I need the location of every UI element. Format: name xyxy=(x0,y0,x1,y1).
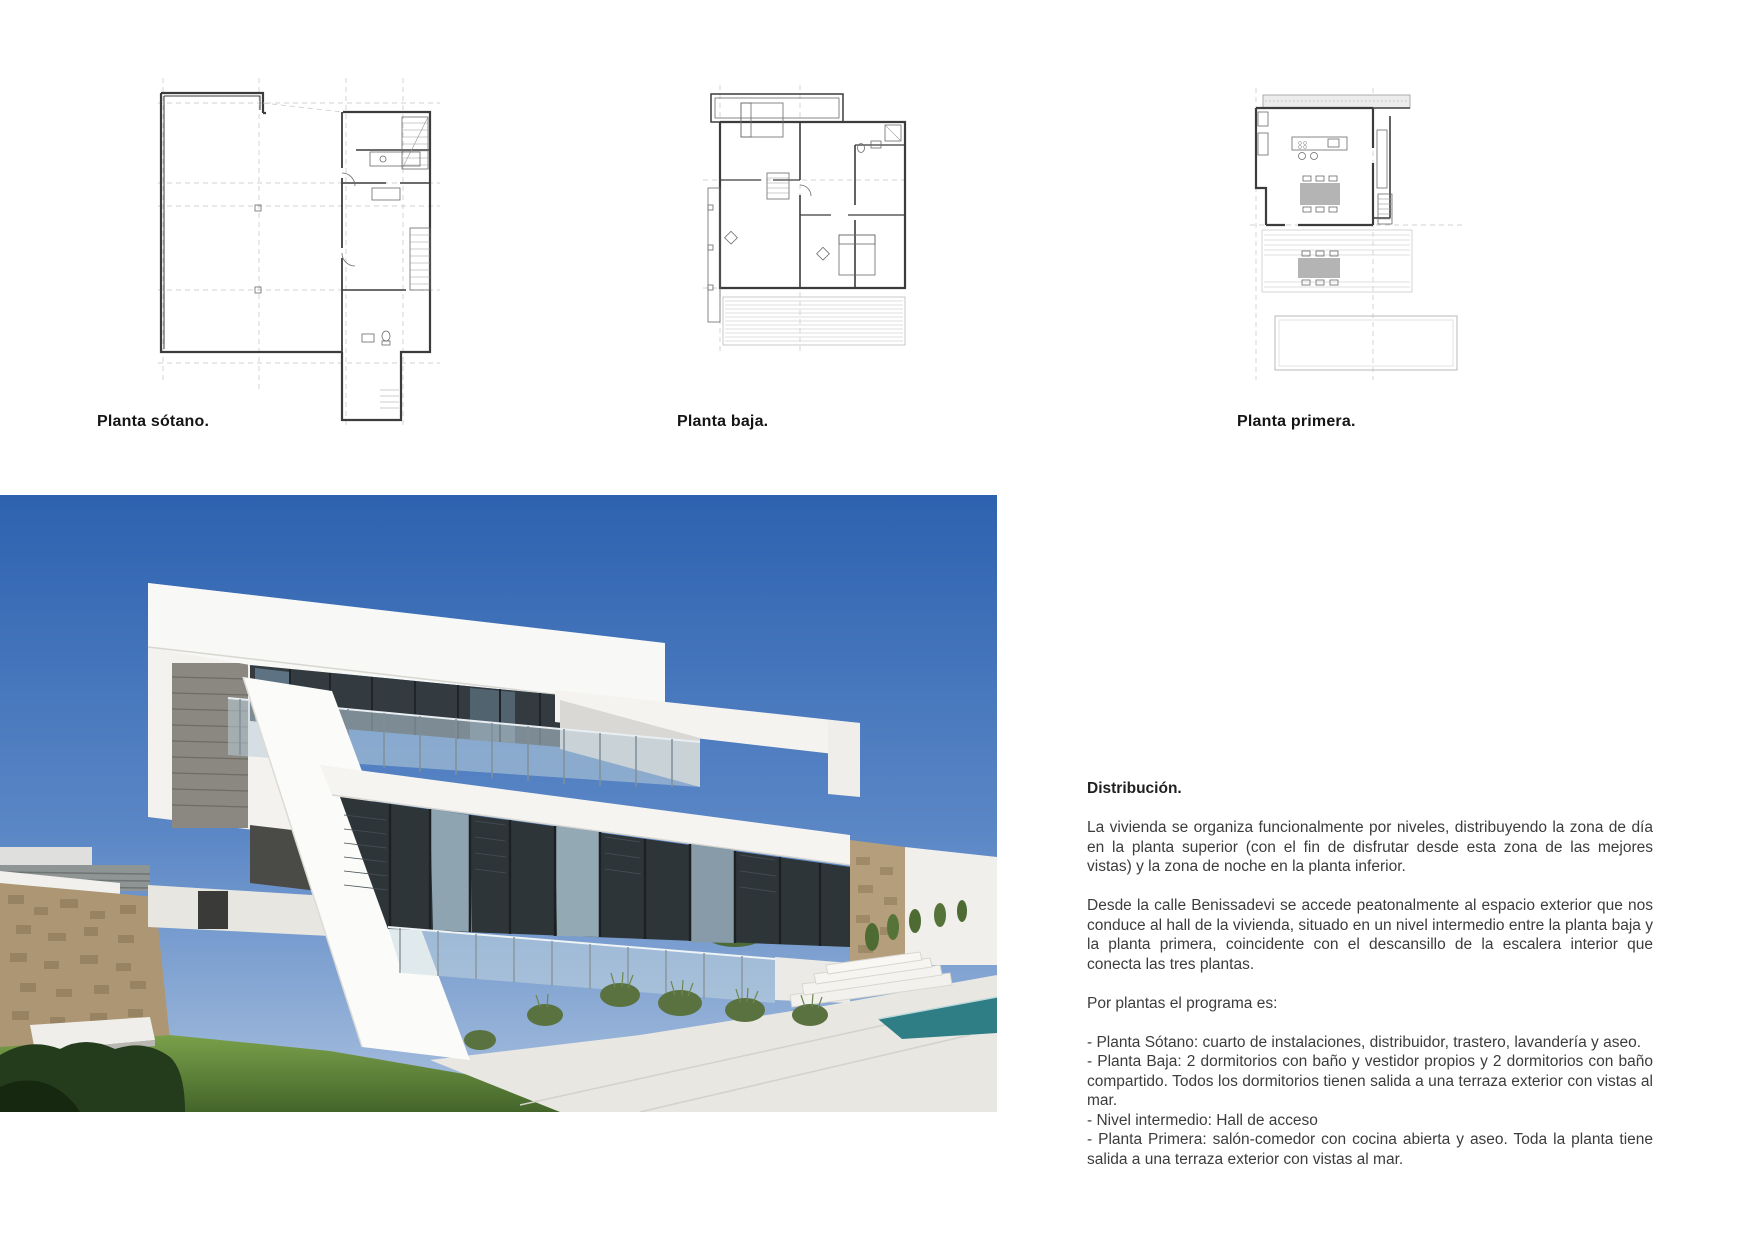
plan-grid xyxy=(158,78,440,426)
plan-dining-table xyxy=(1300,176,1340,212)
plan-side-terrace xyxy=(708,188,720,322)
program-item-intermedio: - Nivel intermedio: Hall de acceso xyxy=(1087,1111,1653,1131)
plan-outer-walls xyxy=(720,122,905,288)
plan-roof-slab xyxy=(711,94,843,122)
plan-kitchen xyxy=(1292,137,1347,160)
plan-grid xyxy=(1250,88,1465,380)
floorplan-sotano-drawing xyxy=(158,78,440,426)
program-item-primera: - Planta Primera: salón-comedor con coci… xyxy=(1087,1130,1653,1169)
plan-outer-walls xyxy=(161,93,430,420)
villa-photo xyxy=(0,495,997,1112)
plan-grid xyxy=(703,85,908,355)
program-item-sotano: - Planta Sótano: cuarto de instalaciones… xyxy=(1087,1033,1653,1053)
plan-stair-upper xyxy=(402,117,428,169)
villa-photo-drawing xyxy=(0,495,997,1112)
document-page: Planta sótano. xyxy=(0,0,1755,1241)
floorplan-baja xyxy=(703,85,908,355)
distribution-text-block: Distribución. La vivienda se organiza fu… xyxy=(1087,779,1653,1169)
paragraph-levels: La vivienda se organiza funcionalmente p… xyxy=(1087,818,1653,877)
plan-pool xyxy=(1275,316,1457,370)
plan-terrace xyxy=(723,297,905,345)
foreground-foliage xyxy=(0,1042,185,1112)
floorplan-sotano xyxy=(158,78,440,426)
plan-internal-walls xyxy=(342,112,430,352)
paragraph-access: Desde la calle Benissadevi se accede pea… xyxy=(1087,896,1653,974)
plan-roof-band xyxy=(1263,95,1410,108)
paragraph-program-intro: Por plantas el programa es: xyxy=(1087,994,1653,1014)
plan-label-primera: Planta primera. xyxy=(1237,413,1356,431)
plan-label-baja: Planta baja. xyxy=(677,413,768,431)
basement-door xyxy=(198,891,228,929)
plan-fixtures xyxy=(255,152,420,408)
canopy-end-fin xyxy=(828,720,860,797)
plan-stair-lower xyxy=(410,228,430,290)
floorplan-primera-drawing xyxy=(1250,88,1465,380)
plan-label-sotano: Planta sótano. xyxy=(97,413,209,431)
floorplan-primera xyxy=(1250,88,1465,380)
plan-terrace-table xyxy=(1298,258,1340,278)
plan-terrace xyxy=(1262,230,1412,292)
plan-stair xyxy=(767,173,789,199)
program-item-baja: - Planta Baja: 2 dormitorios con baño y … xyxy=(1087,1052,1653,1111)
floorplan-baja-drawing xyxy=(703,85,908,355)
plan-internal-walls xyxy=(720,122,905,288)
text-heading: Distribución. xyxy=(1087,779,1653,799)
